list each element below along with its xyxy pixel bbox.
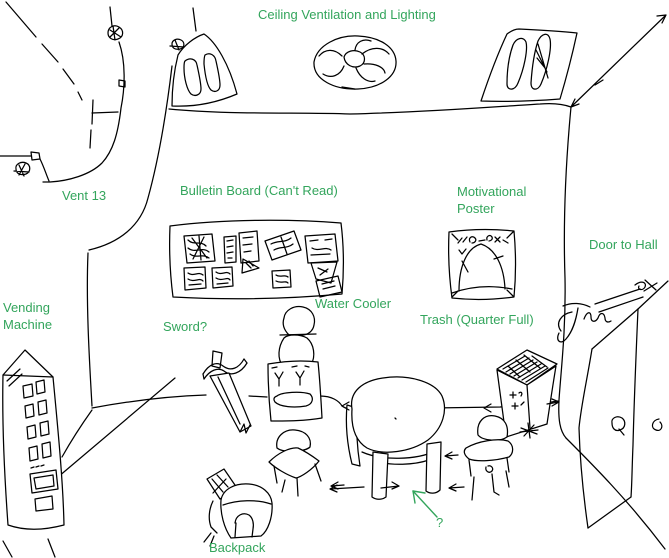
label-vending-machine: Vending Machine [3,299,52,333]
paint-canvas: Ceiling Ventilation and Lighting Vent 13… [0,0,669,558]
door-sketch [579,281,668,528]
skylight-left-sketch [172,8,237,106]
ceiling-fan-sketch [314,36,396,89]
water-cooler-sketch [268,307,322,421]
chair-right-sketch [464,416,512,500]
label-ceiling-ventilation: Ceiling Ventilation and Lighting [258,6,436,23]
bulletin-board-sketch [170,220,344,298]
sword-sketch [203,351,251,433]
label-trash: Trash (Quarter Full) [420,311,534,328]
hinge-scribble [652,419,661,430]
room-sketch [0,0,669,558]
label-table-question: ? [436,514,443,531]
label-motivational-poster: Motivational Poster [457,183,526,217]
ceiling-duct-sketch [0,7,125,182]
signature-scribble [558,280,657,342]
label-sword: Sword? [163,318,207,335]
question-arrow [413,491,437,517]
label-vent-13: Vent 13 [62,187,106,204]
skylight-right-sketch [481,29,577,101]
backpack-sketch [204,469,272,546]
label-door-to-hall: Door to Hall [589,236,658,253]
vending-machine-sketch [3,350,64,529]
motivational-poster-sketch [449,230,516,300]
label-backpack: Backpack [209,539,265,556]
chair-left-sketch [269,430,344,496]
label-water-cooler: Water Cooler [315,295,391,312]
table-sketch [346,377,444,499]
doorknob-icon [612,417,625,435]
label-bulletin-board: Bulletin Board (Can't Read) [180,182,338,199]
